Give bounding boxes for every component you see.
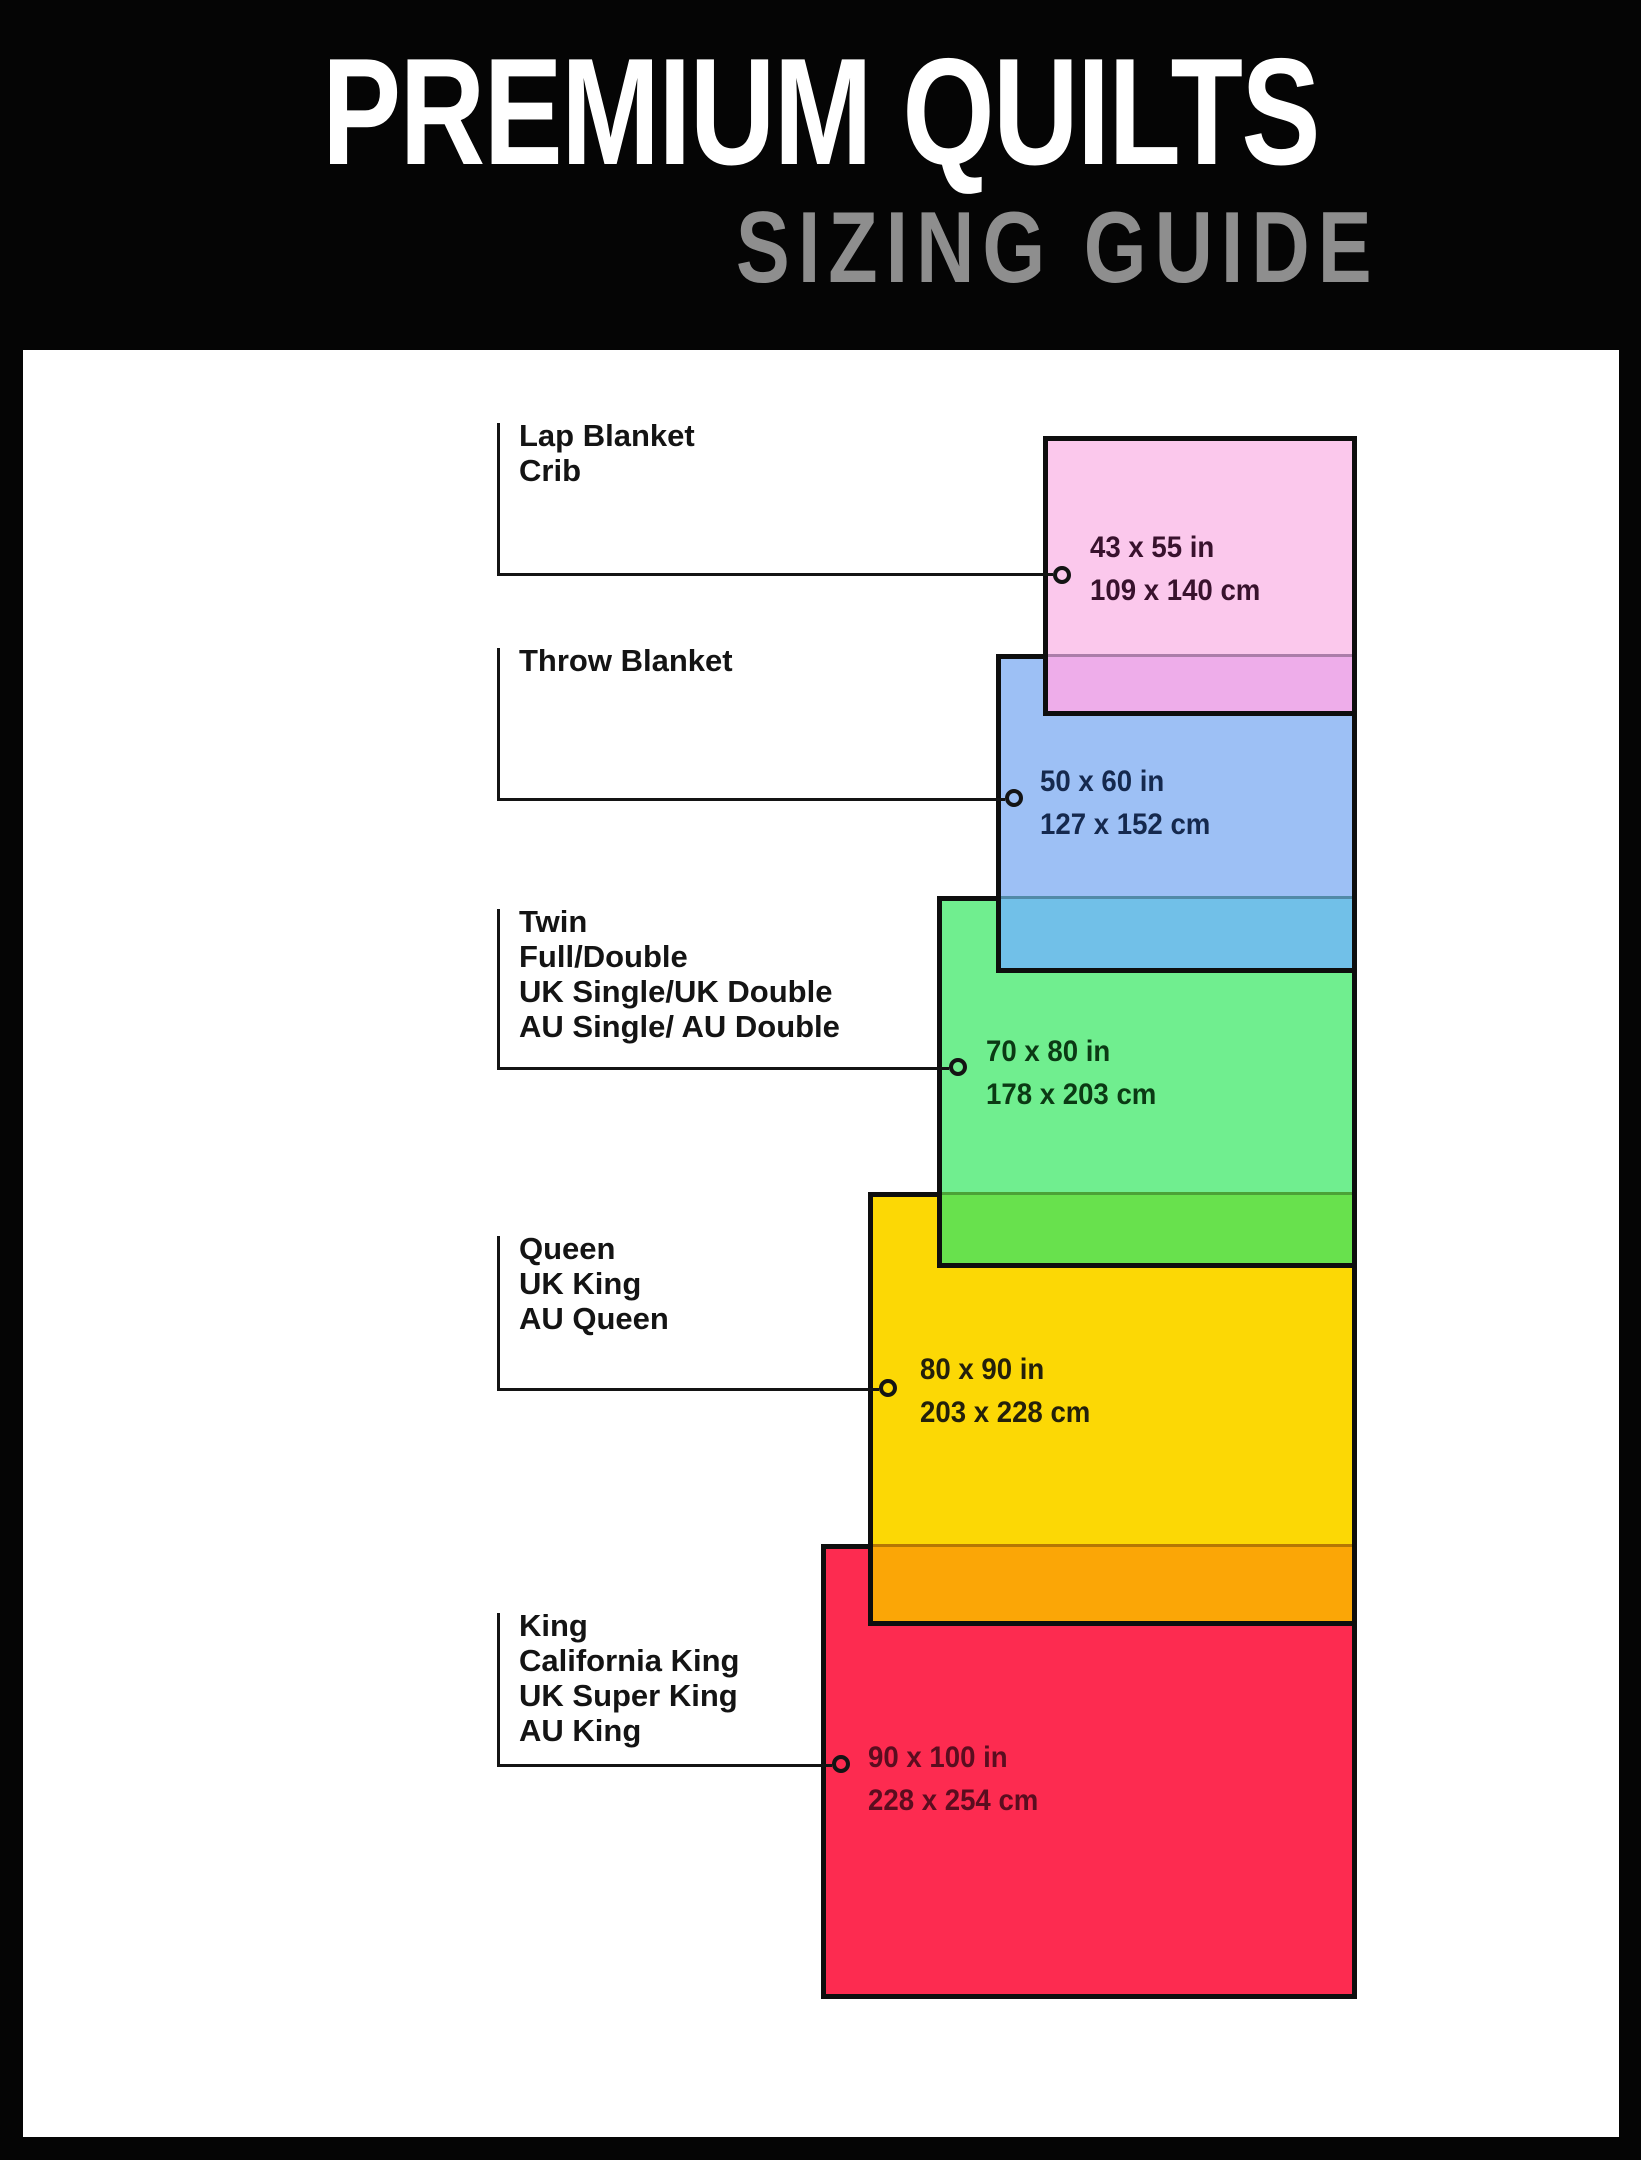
label-line: Crib [519, 453, 695, 488]
label-king: King California King UK Super King AU Ki… [519, 1608, 739, 1748]
callout-dot-lap-crib [1053, 566, 1071, 584]
label-line: AU Queen [519, 1301, 669, 1336]
quilt-overlap-lap-throw [1048, 654, 1352, 711]
size-inches: 70 x 80 in [986, 1030, 1156, 1073]
size-text-queen: 80 x 90 in 203 x 228 cm [920, 1348, 1090, 1434]
label-line: California King [519, 1643, 739, 1678]
label-line: Lap Blanket [519, 418, 695, 453]
label-throw: Throw Blanket [519, 643, 733, 678]
label-queen: Queen UK King AU Queen [519, 1231, 669, 1336]
callout-hline-twin [497, 1067, 949, 1070]
label-line: AU Single/ AU Double [519, 1009, 840, 1044]
size-inches: 50 x 60 in [1040, 760, 1210, 803]
callout-hline-king [497, 1764, 832, 1767]
callout-hline-queen [497, 1388, 879, 1391]
callout-vline-queen [497, 1236, 500, 1390]
label-line: AU King [519, 1713, 739, 1748]
label-line: UK Single/UK Double [519, 974, 840, 1009]
quilt-overlap-twin-queen [942, 1192, 1352, 1263]
page-subtitle: SIZING GUIDE [736, 198, 1380, 299]
size-inches: 90 x 100 in [868, 1736, 1038, 1779]
quilt-overlap-queen-king [873, 1544, 1352, 1621]
quilt-overlap-throw-twin [1001, 896, 1352, 968]
page-title: PREMIUM QUILTS [181, 36, 1461, 188]
callout-vline-king [497, 1613, 500, 1766]
size-cm: 203 x 228 cm [920, 1391, 1090, 1434]
label-line: Twin [519, 904, 840, 939]
size-cm: 228 x 254 cm [868, 1779, 1038, 1822]
size-inches: 43 x 55 in [1090, 526, 1260, 569]
size-inches: 80 x 90 in [920, 1348, 1090, 1391]
callout-dot-throw [1005, 789, 1023, 807]
size-text-twin: 70 x 80 in 178 x 203 cm [986, 1030, 1156, 1116]
size-text-king: 90 x 100 in 228 x 254 cm [868, 1736, 1038, 1822]
label-line: UK King [519, 1266, 669, 1301]
size-text-lap-crib: 43 x 55 in 109 x 140 cm [1090, 526, 1260, 612]
callout-dot-king [832, 1755, 850, 1773]
callout-vline-throw [497, 648, 500, 800]
size-cm: 127 x 152 cm [1040, 803, 1210, 846]
label-lap-crib: Lap Blanket Crib [519, 418, 695, 488]
callout-vline-lap-crib [497, 423, 500, 575]
label-twin: Twin Full/Double UK Single/UK Double AU … [519, 904, 840, 1044]
label-line: UK Super King [519, 1678, 739, 1713]
infographic-page: { "header": { "title": "PREMIUM QUILTS",… [0, 0, 1641, 2160]
callout-dot-queen [879, 1379, 897, 1397]
label-line: King [519, 1608, 739, 1643]
callout-hline-lap-crib [497, 573, 1053, 576]
callout-vline-twin [497, 909, 500, 1069]
size-cm: 178 x 203 cm [986, 1073, 1156, 1116]
label-line: Throw Blanket [519, 643, 733, 678]
size-cm: 109 x 140 cm [1090, 569, 1260, 612]
size-text-throw: 50 x 60 in 127 x 152 cm [1040, 760, 1210, 846]
callout-hline-throw [497, 798, 1005, 801]
label-line: Full/Double [519, 939, 840, 974]
label-line: Queen [519, 1231, 669, 1266]
callout-dot-twin [949, 1058, 967, 1076]
